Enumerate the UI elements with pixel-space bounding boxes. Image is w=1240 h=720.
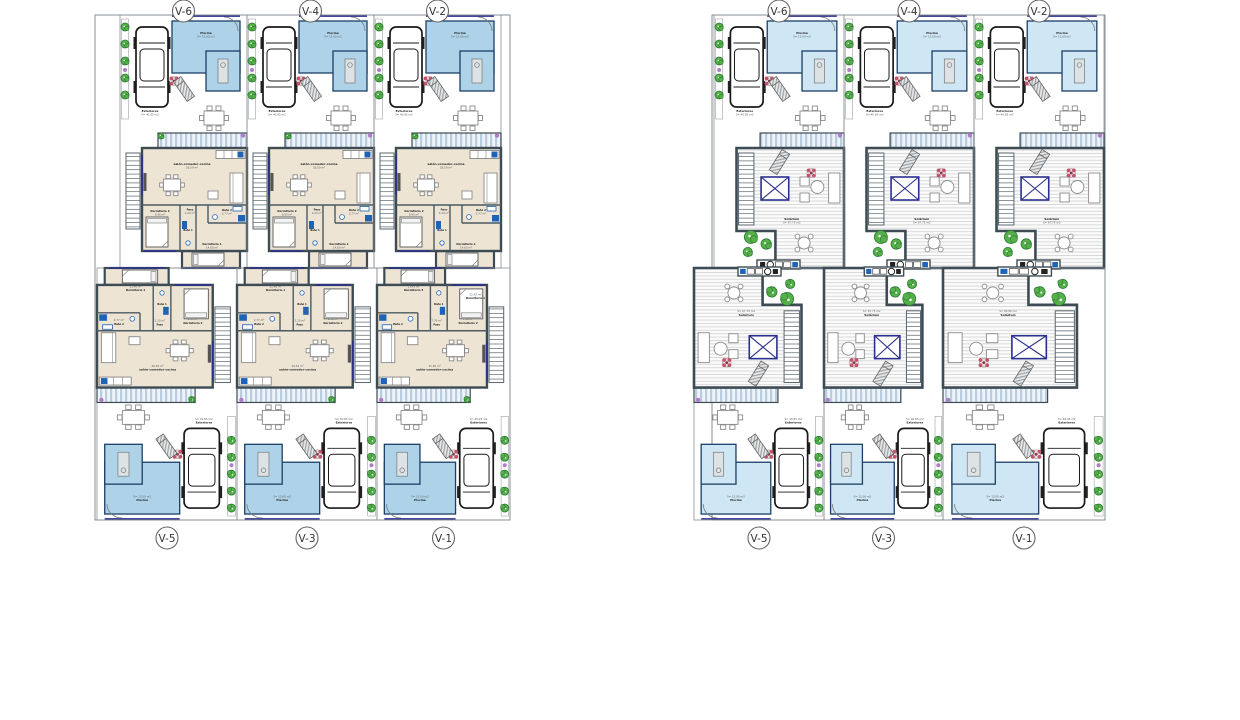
lounge-seat-icon — [856, 334, 864, 343]
armchair-icon — [462, 191, 472, 199]
utility-unit — [880, 269, 887, 275]
lounger-mat — [748, 434, 769, 459]
ground-unit-V-3: PiscinaS= 12.00 m2ExterioresS= 40.85 m2s… — [237, 268, 377, 520]
plant-center — [505, 440, 507, 442]
flower-petal — [812, 169, 816, 173]
plant-center — [1099, 440, 1101, 442]
purple-flower-icon — [847, 68, 851, 72]
solarium-area: S= 67.75 m2 — [1043, 221, 1061, 225]
flower-petal — [1038, 455, 1042, 459]
plant-center — [746, 250, 748, 252]
bed-pillow — [402, 219, 421, 224]
bathroom1-label: Baño 1 — [183, 229, 193, 232]
unit-label-text: V-3 — [875, 533, 892, 545]
bathroom2-label: Baño 2 — [393, 322, 403, 326]
hedge-plant-icon — [227, 437, 231, 441]
roof-plant-icon — [1058, 280, 1063, 285]
chair — [136, 405, 142, 409]
hedge-plant-icon — [979, 43, 983, 47]
exteriores-label: Exteriores — [1058, 420, 1075, 424]
chair — [938, 247, 943, 252]
roof-plant-icon — [896, 243, 902, 249]
bedroom1-area: 11,46 m² — [269, 284, 281, 288]
flower-petal — [1072, 169, 1076, 173]
roof-plant-icon — [880, 236, 887, 243]
chair — [841, 415, 845, 420]
plant-center — [1040, 292, 1042, 294]
kitchen-sink-icon — [365, 152, 371, 158]
exteriores-label: Exteriores — [196, 420, 213, 424]
hedge-plant-icon — [1094, 504, 1098, 508]
roof-stairs — [869, 153, 884, 225]
hedge-plant-icon — [1094, 454, 1098, 458]
unit-label-V-1: V-1 — [1013, 527, 1035, 549]
roof-stairs — [1055, 311, 1074, 383]
sink-icon — [382, 325, 391, 329]
outdoor-dining-table-icon — [122, 410, 144, 424]
unit-label-text: V-4 — [900, 6, 917, 18]
plant-center — [819, 491, 821, 493]
bistro-table-icon — [798, 237, 810, 249]
bathroom2-area: 3,77 m² — [349, 212, 360, 216]
unit-label-V-3: V-3 — [873, 527, 895, 549]
roof-plant-icon — [890, 287, 896, 293]
chair — [1072, 106, 1077, 111]
outdoor-sofa-icon — [948, 333, 962, 363]
bed-pillow — [448, 255, 453, 265]
purple-flower-icon — [123, 68, 127, 72]
bistro-table-icon — [728, 287, 740, 299]
chair — [293, 175, 297, 179]
exteriores-area: S= 40.85 m2 — [736, 113, 754, 117]
car-icon — [898, 428, 928, 508]
plant-center — [505, 508, 507, 510]
sofa-icon — [357, 173, 370, 203]
sofa-icon — [230, 173, 243, 203]
chair — [1063, 126, 1068, 131]
unit-label-V-3: V-3 — [296, 527, 318, 549]
unit-label-V-6: V-6 — [768, 0, 790, 22]
sink-icon — [233, 207, 242, 212]
chair — [166, 192, 170, 196]
solarium-unit-V-2: PiscinaS= 12.00 m2ExterioresS= 40.85 m2S… — [974, 15, 1104, 269]
flower-petal — [855, 358, 859, 362]
hallway-label: Paso — [156, 322, 163, 326]
chair — [457, 340, 461, 344]
chair — [160, 183, 164, 187]
bathroom2-area: 3,77 m² — [222, 212, 233, 216]
chair — [821, 116, 825, 121]
armchair-icon — [335, 191, 345, 199]
chair — [334, 106, 339, 111]
coffee-table-icon — [970, 342, 983, 355]
plant-center — [1099, 457, 1101, 459]
purple-flower-icon — [838, 133, 842, 137]
chair — [181, 183, 185, 187]
roof-plant-icon — [1010, 236, 1017, 243]
toilet-icon — [213, 215, 218, 220]
utility-unit — [1009, 269, 1018, 275]
chair — [404, 425, 409, 429]
bedroom2-label: Dormitorio 2 — [459, 321, 478, 325]
chair — [721, 425, 726, 429]
chair — [126, 405, 132, 409]
shower-tray-icon — [492, 215, 499, 222]
indoor-dining-table-icon — [447, 345, 465, 357]
flower-petal — [728, 358, 732, 362]
shower-tray-icon — [182, 221, 187, 229]
roof-stairs — [999, 153, 1014, 225]
living-room-area: 31,56 m² — [428, 364, 440, 368]
car-icon — [184, 428, 219, 508]
bedroom2-area: 9,95 m² — [155, 213, 166, 217]
indoor-dining-table-icon — [164, 179, 181, 191]
utility-unit — [760, 262, 765, 267]
plant-center — [938, 508, 940, 510]
unit-label-text: V-5 — [750, 533, 767, 545]
chair — [457, 357, 461, 361]
chair — [976, 425, 982, 429]
flower-petal — [1067, 174, 1071, 178]
hedge-plant-icon — [719, 77, 723, 81]
roof-plant-icon — [908, 280, 913, 285]
chair — [136, 425, 142, 429]
plant-center — [977, 60, 979, 62]
plant-center — [1008, 235, 1011, 238]
unit-label-V-5: V-5 — [748, 527, 770, 549]
outdoor-sofa-icon — [698, 333, 709, 363]
roof-plant-icon — [747, 251, 752, 256]
sink-icon — [103, 325, 113, 329]
plant-center — [748, 235, 751, 238]
purple-flower-icon — [229, 463, 233, 467]
lounge-seat-icon — [800, 193, 809, 202]
chair — [343, 106, 348, 111]
sofa-icon — [381, 333, 395, 363]
plant-center — [1099, 491, 1101, 493]
flower-petal — [1072, 174, 1076, 178]
shower-tray-icon — [99, 314, 107, 320]
porch-pergola — [237, 388, 335, 403]
chair — [207, 106, 212, 111]
chair — [465, 349, 469, 353]
solarium-area: S= 67.75 m2 — [737, 309, 755, 313]
chair — [988, 425, 994, 429]
chair — [313, 340, 318, 344]
porch-pergola — [377, 388, 470, 403]
flower-petal — [942, 174, 946, 178]
flower-petal — [318, 455, 322, 459]
plant-center — [717, 26, 719, 28]
chair — [257, 415, 262, 420]
flower-petal — [170, 82, 174, 86]
deck-plant-icon — [288, 135, 291, 138]
chair — [864, 284, 869, 289]
outdoor-dining-table-icon — [262, 410, 284, 424]
bed-pillow — [461, 313, 481, 317]
plant-center — [912, 284, 914, 286]
plant-center — [847, 26, 849, 28]
hedge-plant-icon — [719, 94, 723, 98]
plant-center — [377, 77, 379, 79]
plant-center — [123, 94, 125, 96]
chair — [848, 405, 853, 409]
coffee-table-icon — [714, 342, 727, 355]
lounge-seat-icon — [856, 350, 864, 359]
chair — [301, 192, 305, 196]
flower-center — [810, 172, 813, 175]
purple-flower-icon — [503, 463, 507, 467]
bathroom1-label: Baño 1 — [297, 303, 307, 306]
bathroom2-label: Baño 2 — [254, 322, 264, 326]
coffee-table-icon — [941, 181, 954, 194]
sun-lounger-icon — [748, 434, 769, 459]
toilet-icon — [130, 316, 135, 321]
pool-label: Piscina — [136, 498, 148, 502]
car-icon — [136, 27, 168, 107]
hedge-plant-icon — [125, 43, 129, 47]
chair — [1055, 116, 1059, 121]
hedge-plant-icon — [719, 60, 723, 64]
roof-plant-icon — [781, 293, 788, 300]
flower-petal — [985, 358, 989, 362]
porch-pergola — [890, 133, 974, 148]
tv-icon — [398, 173, 401, 191]
flower-petal — [812, 174, 816, 178]
plant-center — [717, 77, 719, 79]
exteriores-area: S= 40.85 m2 — [268, 113, 286, 117]
flower-petal — [979, 358, 983, 362]
exteriores-area: S= 40.85 m2 — [195, 417, 213, 421]
plant-center — [847, 43, 849, 45]
chair — [738, 297, 743, 302]
flower-petal — [178, 455, 182, 459]
chair — [713, 415, 717, 420]
hedge-plant-icon — [367, 454, 371, 458]
plant-center — [377, 26, 379, 28]
pool-area: S= 12.00 m2 — [324, 35, 342, 39]
bedroom3-area: 12,42 m² — [469, 292, 481, 296]
exterior-stairs — [253, 153, 267, 229]
unit-label-text: V-4 — [302, 6, 319, 18]
flower-petal — [855, 363, 859, 367]
plant-center — [372, 457, 374, 459]
chair — [738, 284, 743, 289]
coffee-table-icon — [1071, 181, 1084, 194]
toilet-icon — [440, 241, 444, 245]
plant-center — [1099, 508, 1101, 510]
plant-center — [287, 135, 288, 136]
unit-label-text: V-6 — [175, 6, 192, 18]
plant-center — [938, 474, 940, 476]
deck-plant-icon — [464, 397, 467, 400]
flower-petal — [979, 363, 983, 367]
utility-unit-blue — [1052, 262, 1058, 267]
unit-label-V-4: V-4 — [300, 0, 322, 22]
exteriores-label: Exteriores — [336, 420, 353, 424]
indoor-dining-table-icon — [310, 345, 329, 357]
chair — [308, 183, 312, 187]
hedge-plant-icon — [252, 77, 256, 81]
pool-area: S= 12.00 m2 — [451, 35, 469, 39]
purple-flower-icon — [968, 133, 972, 137]
deck-plant-icon — [161, 135, 164, 138]
plant-center — [372, 491, 374, 493]
hedge-plant-icon — [849, 43, 853, 47]
chair — [933, 126, 938, 131]
lounge-seat-icon — [930, 193, 939, 202]
bathroom2-area: 2,77 m² — [254, 318, 265, 322]
pool-area: S= 12.00 m2 — [1053, 35, 1071, 39]
pool-label: Piscina — [730, 498, 742, 502]
bedroom3-label: Dormitorio 1 — [466, 296, 485, 300]
sun-lounger-icon — [1013, 434, 1034, 459]
toilet-icon — [186, 241, 190, 245]
plant-center — [232, 508, 234, 510]
bistro-table-icon — [987, 287, 999, 299]
unit-label-V-2: V-2 — [427, 0, 449, 22]
hedge-plant-icon — [815, 471, 819, 475]
hedge-plant-icon — [125, 26, 129, 30]
plant-center — [790, 284, 792, 286]
purple-flower-icon — [717, 68, 721, 72]
chair — [470, 126, 475, 131]
sun-lounger-icon — [1029, 77, 1050, 102]
car-icon — [860, 27, 893, 107]
chair — [420, 192, 424, 196]
hedge-plant-icon — [979, 60, 983, 64]
utility-unit-blue — [740, 269, 746, 274]
sofa-icon — [101, 333, 115, 363]
chair — [414, 425, 419, 429]
outdoor-sofa-icon — [829, 173, 840, 203]
bedroom1-label: Dormitorio 3 — [404, 288, 423, 292]
roof-plant-icon — [750, 236, 757, 243]
plant-center — [160, 135, 161, 136]
exterior-stairs — [489, 307, 504, 383]
purple-flower-icon — [946, 398, 950, 402]
chair — [721, 405, 726, 409]
car-icon — [324, 428, 359, 508]
utility-unit-blue — [792, 262, 798, 267]
exterior-stairs — [126, 153, 140, 229]
chair — [812, 126, 817, 131]
chair — [1055, 247, 1060, 252]
bed-pillow — [148, 219, 167, 224]
chair — [200, 116, 204, 121]
flower-petal — [769, 450, 773, 454]
tv-icon — [271, 173, 274, 191]
bedroom1-label: Dormitorio 1 — [126, 288, 145, 292]
plant-center — [505, 491, 507, 493]
chair — [351, 116, 355, 121]
solarium-area: S= 67.75 m2 — [783, 221, 801, 225]
toilet-icon — [408, 316, 413, 321]
purple-flower-icon — [369, 463, 373, 467]
solarium-label: Solárium — [739, 313, 754, 317]
plant-center — [232, 440, 234, 442]
utility-unit — [1020, 269, 1029, 275]
hedge-plant-icon — [849, 60, 853, 64]
roof-plant-icon — [1052, 293, 1059, 300]
purple-flower-icon — [1098, 133, 1102, 137]
porch-pergola — [760, 133, 844, 148]
kitchen-sink-icon — [238, 152, 244, 158]
chair — [428, 175, 432, 179]
unit-label-V-6: V-6 — [173, 0, 195, 22]
plant-center — [977, 43, 979, 45]
purple-flower-icon — [377, 68, 381, 72]
hedge-plant-icon — [815, 488, 819, 492]
roof-plant-icon — [786, 280, 791, 285]
chair — [982, 297, 987, 302]
flower-petal — [807, 174, 811, 178]
solarium-label: Solárium — [1001, 313, 1016, 317]
outdoor-dining-table-icon — [800, 111, 820, 125]
plant-center — [250, 77, 252, 79]
chair — [951, 116, 955, 121]
porch-pergola — [285, 133, 374, 148]
chair — [313, 357, 318, 361]
hedge-plant-icon — [379, 77, 383, 81]
utility-unit — [896, 269, 901, 274]
plant-center — [505, 474, 507, 476]
sink-icon — [360, 207, 369, 212]
chair — [1068, 247, 1073, 252]
exterior-stairs — [215, 307, 230, 383]
pool-area: S= 12.00 m2 — [197, 35, 215, 39]
exteriores-area: S= 40.85 m2 — [395, 113, 413, 117]
unit-label-text: V-2 — [1030, 6, 1047, 18]
bathroom1-label: Baño 1 — [437, 229, 447, 232]
plant-center — [250, 60, 252, 62]
purple-flower-icon — [99, 398, 103, 402]
sun-lounger-icon — [432, 434, 453, 459]
chair — [189, 349, 193, 353]
roof-stairs — [739, 153, 754, 225]
bathroom1-label: Baño 1 — [434, 303, 444, 306]
chair — [420, 175, 424, 179]
hedge-plant-icon — [815, 504, 819, 508]
solarium-unit-V-6: PiscinaS= 12.00 m2ExterioresS= 40.85 m2S… — [714, 15, 844, 269]
chair — [216, 126, 221, 131]
lounger-mat — [300, 77, 321, 102]
hedge-plant-icon — [501, 488, 505, 492]
utility-unit-blue — [866, 269, 871, 274]
hallway-area: 2,20 m² — [312, 211, 323, 215]
plant-center — [377, 43, 379, 45]
bedroom2-label: Dormitorio 2 — [183, 321, 202, 325]
flower-petal — [170, 77, 174, 81]
hedge-plant-icon — [849, 26, 853, 30]
hedge-plant-icon — [979, 94, 983, 98]
plant-center — [250, 94, 252, 96]
outdoor-dining-table-icon — [718, 410, 738, 424]
bed-pillow — [151, 271, 156, 281]
lounge-seat-icon — [800, 177, 809, 186]
flower-petal — [722, 358, 726, 362]
living-room-area: 26,59 m² — [186, 166, 198, 170]
unit-label-V-4: V-4 — [898, 0, 920, 22]
lounger-mat — [427, 77, 448, 102]
hedge-plant-icon — [367, 488, 371, 492]
flower-petal — [807, 169, 811, 173]
hallway-area: 7,76 m² — [431, 319, 442, 323]
plant-center — [414, 135, 415, 136]
pool-area: S= 12.00 m2 — [923, 35, 941, 39]
porch-pergola — [412, 133, 501, 148]
plant-center — [938, 491, 940, 493]
